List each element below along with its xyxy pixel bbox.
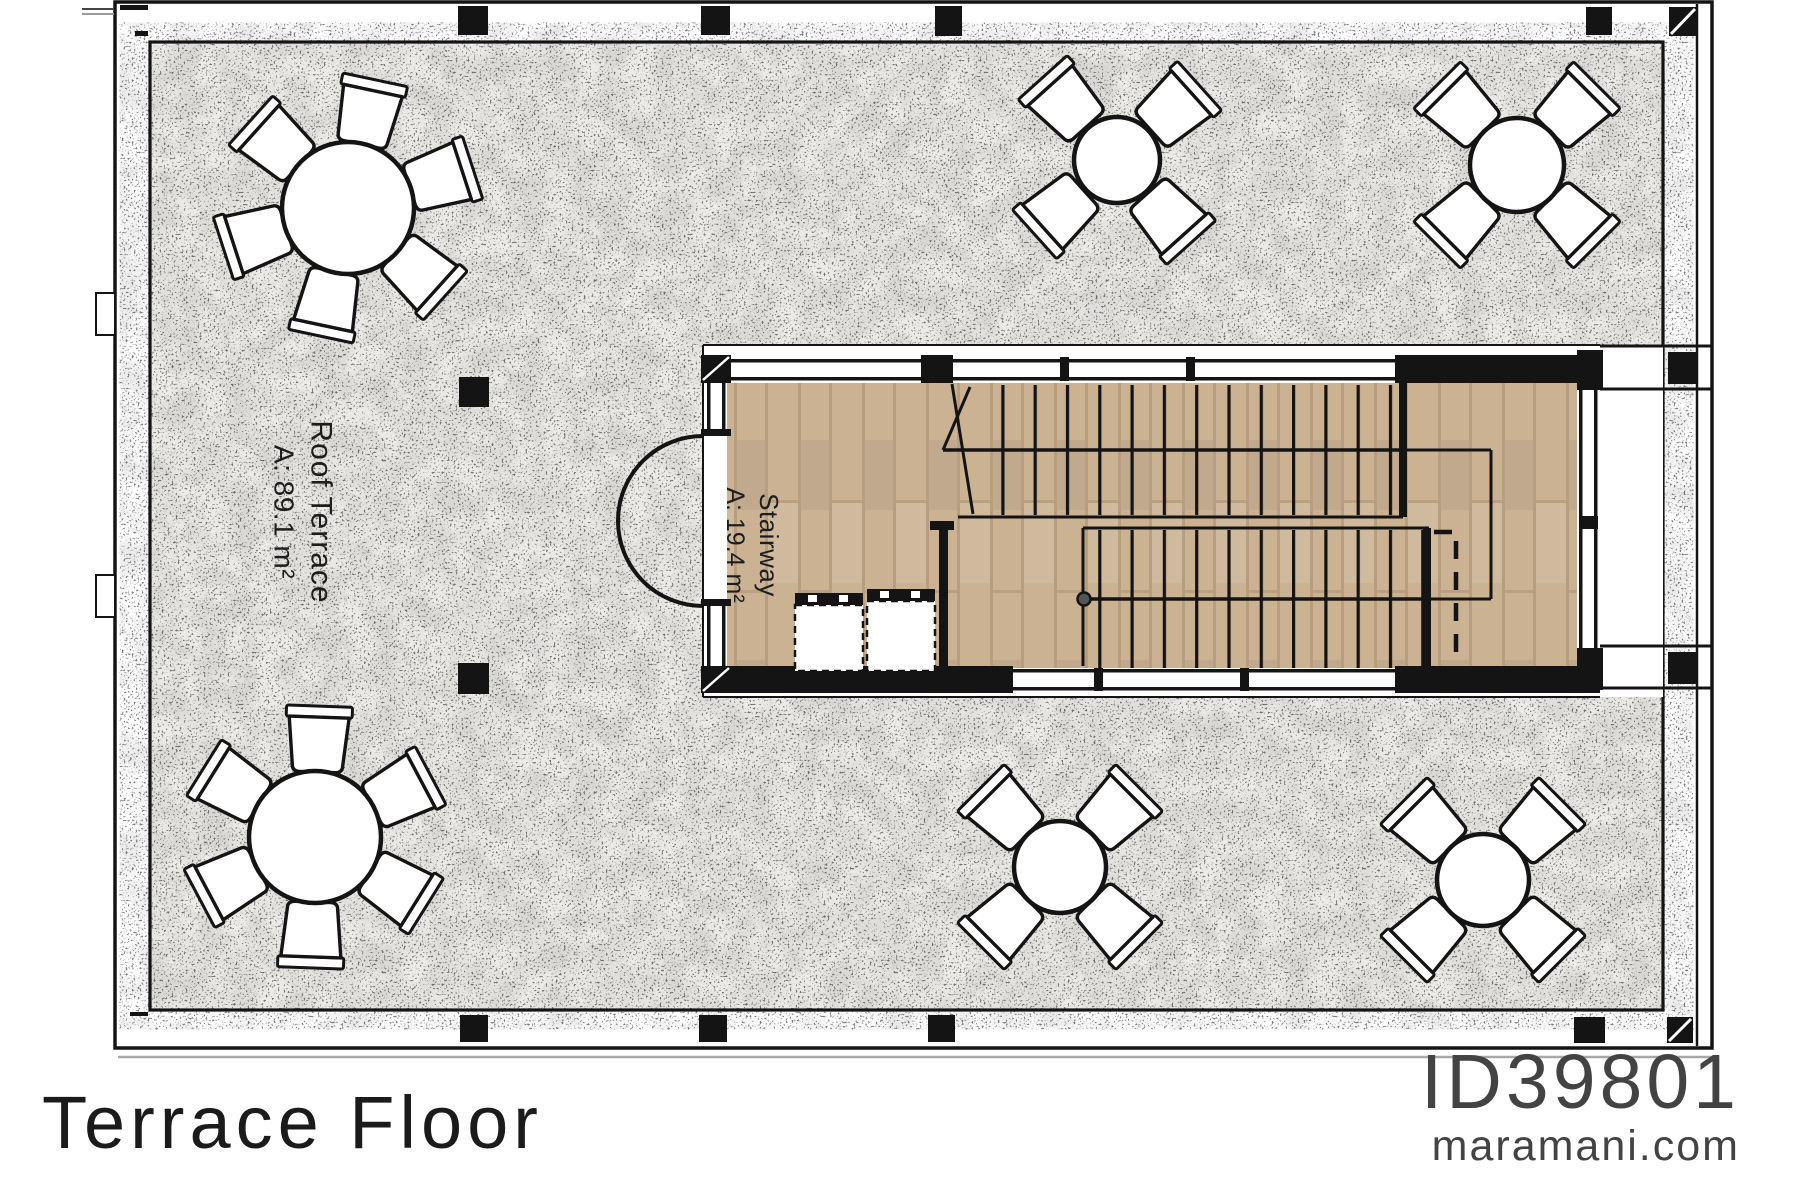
perimeter-column: [1668, 652, 1696, 684]
stairway-label: Stairway A: 19.4 m²: [719, 487, 785, 602]
corner-tick: [130, 1012, 148, 1016]
perimeter-column: [935, 6, 962, 36]
window-mullion: [1580, 516, 1598, 529]
round-table: [1074, 117, 1160, 203]
corner-tick: [135, 31, 148, 36]
roof-terrace-label: Roof Terrace A: 89.1 m²: [265, 420, 340, 603]
window-band: [1013, 687, 1395, 691]
utility-box: [795, 593, 863, 671]
round-table: [1470, 118, 1564, 212]
wall-column: [1577, 350, 1603, 390]
plan-id: ID39801: [1421, 1044, 1740, 1121]
door-jamb: [701, 429, 731, 436]
interior-column: [459, 377, 489, 407]
perimeter-column: [699, 1015, 727, 1042]
window-band: [707, 383, 711, 429]
floor-title: Terrace Floor: [42, 1080, 543, 1165]
stair-wall-stub: [939, 521, 948, 668]
window-mullion: [1240, 668, 1249, 691]
window-mullion: [1186, 357, 1195, 381]
room-name: Roof Terrace: [302, 420, 341, 603]
round-table: [1014, 821, 1106, 913]
interior-column: [458, 663, 489, 694]
perimeter-columns-top: [458, 6, 1697, 36]
window-band: [953, 377, 1395, 381]
utility-box: [867, 589, 935, 671]
window-band: [707, 606, 711, 666]
window-mullion: [1094, 668, 1103, 691]
perimeter-column: [928, 1015, 955, 1042]
window-band: [722, 383, 726, 429]
dining-chair: [284, 705, 352, 773]
window-band: [1013, 669, 1395, 673]
window-band: [731, 377, 921, 381]
window-band: [731, 359, 921, 363]
left-edge-notch: [96, 293, 115, 335]
upper-stair-flight: [943, 383, 1407, 517]
window-band: [953, 359, 1395, 363]
brand-block: ID39801 maramani.com: [1421, 1044, 1740, 1171]
perimeter-column: [1668, 352, 1696, 384]
dining-chair: [277, 901, 345, 969]
website: maramani.com: [1421, 1122, 1740, 1171]
round-table: [1437, 834, 1529, 926]
window-band: [722, 606, 726, 666]
round-table: [249, 771, 381, 903]
floor-plan-page: Roof Terrace A: 89.1 m² Stairway A: 19.4…: [0, 0, 1800, 1200]
corner-tick: [120, 5, 148, 10]
stair-newel-post: [1078, 593, 1091, 606]
window-mullion: [1060, 357, 1069, 381]
room-area: A: 89.1 m²: [265, 420, 301, 603]
left-edge-notch: [96, 575, 115, 617]
round-table: [282, 142, 414, 274]
wall-column: [921, 355, 953, 383]
room-name: Stairway: [751, 487, 785, 602]
perimeter-column: [701, 6, 730, 35]
solid-wall: [1395, 666, 1600, 693]
room-area: A: 19.4 m²: [719, 487, 752, 602]
perimeter-column: [1586, 7, 1612, 35]
solid-wall: [1395, 355, 1577, 383]
perimeter-column: [458, 6, 488, 35]
perimeter-column: [460, 1015, 488, 1042]
